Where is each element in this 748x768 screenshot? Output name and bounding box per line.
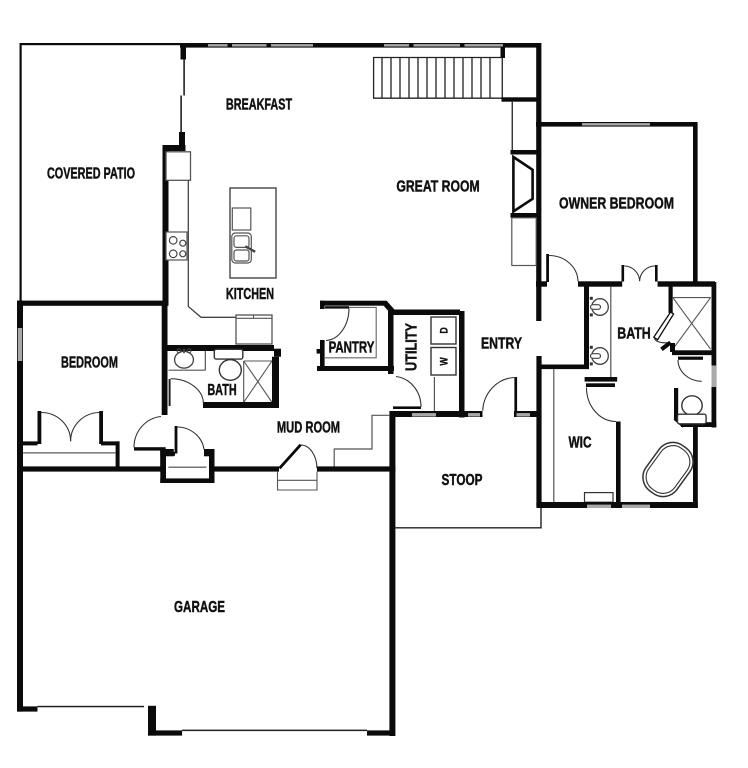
svg-text:PANTRY: PANTRY — [329, 339, 375, 356]
svg-text:STOOP: STOOP — [442, 471, 483, 488]
svg-text:GREAT ROOM: GREAT ROOM — [396, 177, 479, 195]
svg-text:KITCHEN: KITCHEN — [226, 285, 274, 302]
svg-text:BREAKFAST: BREAKFAST — [226, 96, 293, 113]
svg-text:BATH: BATH — [617, 324, 650, 342]
svg-text:BEDROOM: BEDROOM — [61, 354, 118, 371]
svg-text:OWNER BEDROOM: OWNER BEDROOM — [559, 194, 674, 212]
svg-text:WIC: WIC — [568, 434, 591, 451]
svg-text:GARAGE: GARAGE — [174, 598, 225, 615]
svg-text:MUD ROOM: MUD ROOM — [277, 419, 340, 436]
svg-text:BATH: BATH — [207, 381, 236, 398]
svg-text:ENTRY: ENTRY — [481, 334, 523, 352]
svg-text:COVERED PATIO: COVERED PATIO — [47, 165, 135, 182]
svg-text:UTILITY: UTILITY — [403, 323, 420, 371]
svg-text:D: D — [439, 327, 451, 333]
svg-text:W: W — [439, 357, 451, 366]
